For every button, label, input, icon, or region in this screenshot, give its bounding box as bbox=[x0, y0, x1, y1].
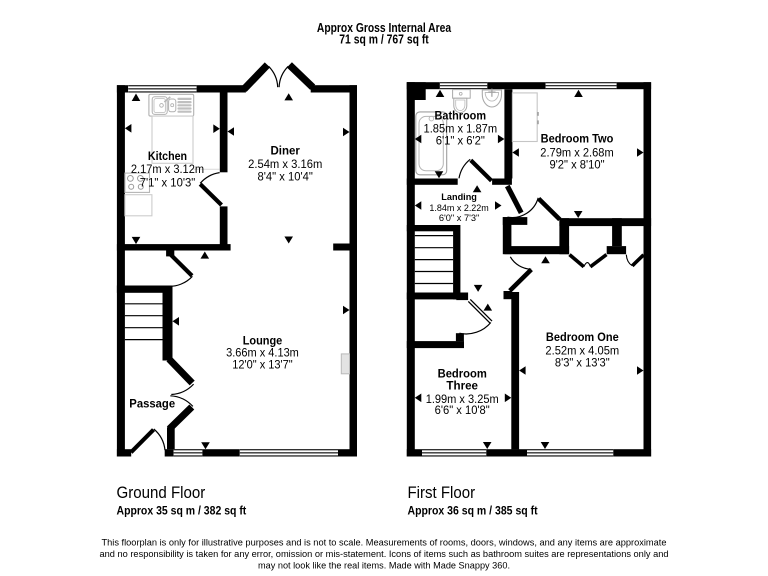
svg-text:Diner: Diner bbox=[271, 143, 301, 157]
svg-text:Passage: Passage bbox=[129, 396, 175, 410]
svg-text:71 sq m / 767 sq ft: 71 sq m / 767 sq ft bbox=[339, 32, 429, 46]
svg-text:Three: Three bbox=[446, 378, 478, 392]
svg-text:6'1" x 6'2": 6'1" x 6'2" bbox=[436, 133, 485, 147]
svg-text:and no responsibility is taken: and no responsibility is taken for any e… bbox=[100, 549, 669, 560]
svg-text:12'0" x 13'7": 12'0" x 13'7" bbox=[232, 357, 292, 371]
svg-text:Bathroom: Bathroom bbox=[435, 108, 487, 122]
svg-text:2.17m x 3.12m: 2.17m x 3.12m bbox=[131, 162, 204, 176]
svg-text:8'4" x 10'4": 8'4" x 10'4" bbox=[258, 169, 313, 183]
svg-text:7'1" x 10'3": 7'1" x 10'3" bbox=[140, 176, 196, 190]
svg-text:8'3" x 13'3": 8'3" x 13'3" bbox=[555, 356, 610, 370]
svg-text:First Floor: First Floor bbox=[408, 484, 476, 502]
svg-text:Kitchen: Kitchen bbox=[148, 149, 187, 163]
svg-text:6'0" x 7'3": 6'0" x 7'3" bbox=[439, 213, 480, 223]
svg-text:6'6" x 10'8": 6'6" x 10'8" bbox=[435, 403, 490, 417]
svg-text:This floorplan is only for ill: This floorplan is only for illustrative … bbox=[102, 537, 667, 548]
svg-text:Bedroom Two: Bedroom Two bbox=[541, 132, 614, 146]
svg-text:Approx 36 sq m / 385 sq ft: Approx 36 sq m / 385 sq ft bbox=[408, 505, 538, 517]
svg-text:9'2" x 8'10": 9'2" x 8'10" bbox=[549, 158, 604, 172]
svg-text:1.84m x 2.22m: 1.84m x 2.22m bbox=[429, 203, 489, 213]
svg-text:Bedroom One: Bedroom One bbox=[546, 330, 619, 344]
svg-text:may not look like the real ite: may not look like the real items. Made w… bbox=[258, 560, 510, 571]
svg-text:Approx 35 sq m / 382 sq ft: Approx 35 sq m / 382 sq ft bbox=[117, 505, 247, 517]
svg-text:Ground Floor: Ground Floor bbox=[117, 484, 206, 502]
svg-text:Landing: Landing bbox=[441, 192, 477, 202]
